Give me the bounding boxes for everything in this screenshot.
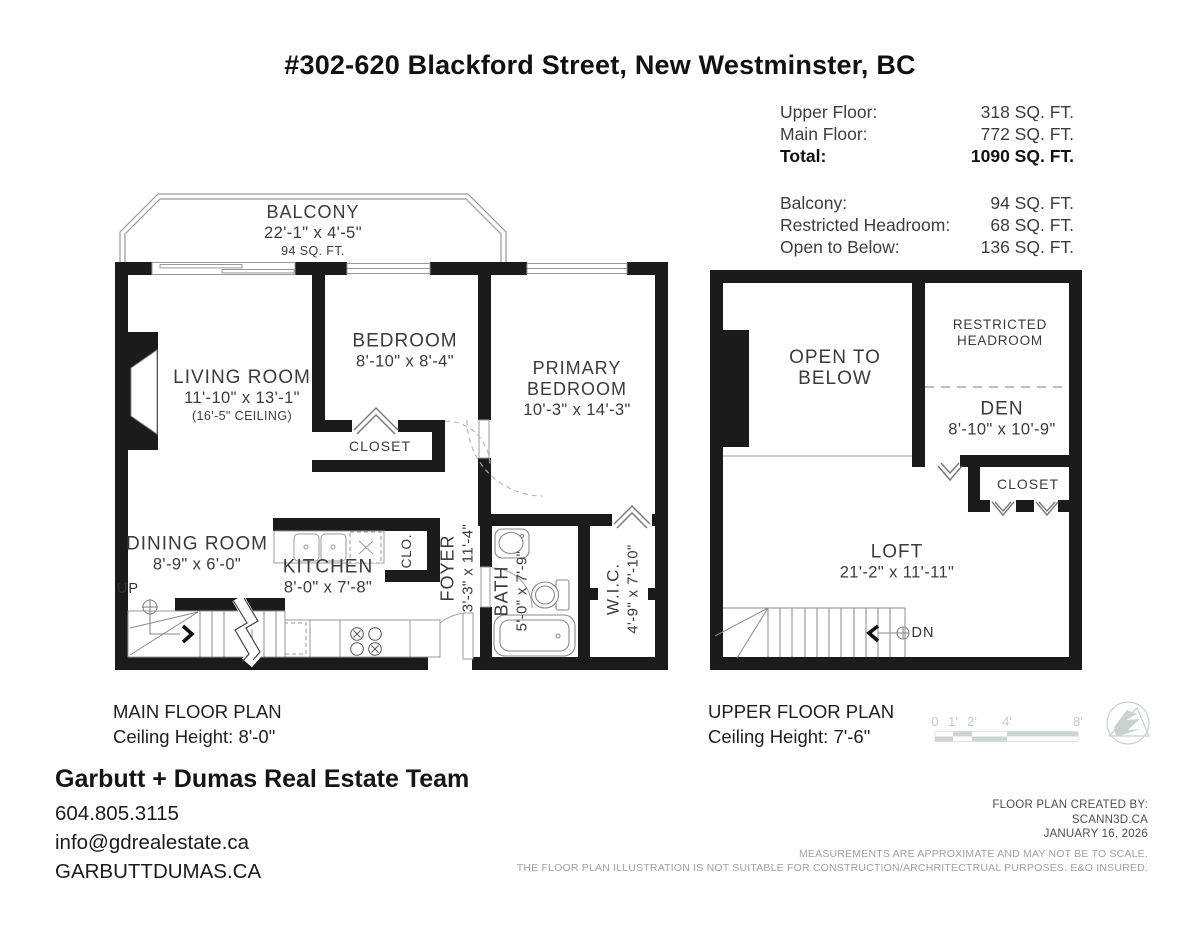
upper-closet-label: CLOSET [997,476,1059,492]
team-name: Garbutt + Dumas Real Estate Team [55,765,469,794]
primary-bedroom-label: PRIMARY BEDROOM 10'-3" x 14'-3" [523,358,630,420]
area-row-upper: Upper Floor:318 SQ. FT. [780,101,1074,123]
scale-label-1: 1' [948,714,958,729]
balcony-sliding-door [152,261,295,276]
floor-plan-page: { "title": "#302-620 Blackford Street, N… [0,0,1200,927]
scale-label-2: 2' [967,714,977,729]
disclaimer-block: MEASUREMENTS ARE APPROXIMATE AND MAY NOT… [0,848,1148,875]
dn-arrow [869,626,878,641]
bedroom-label: BEDROOM 8'-10" x 8'-4" [352,331,457,372]
area-row-restricted: Restricted Headroom:68 SQ. FT. [780,214,1074,236]
area-row-main: Main Floor:772 SQ. FT. [780,123,1074,145]
page-title: #302-620 Blackford Street, New Westminst… [0,50,1200,81]
den-label: DEN 8'-10" x 10'-9" [948,399,1055,440]
bedroom-window [347,261,430,276]
area-row-total: Total:1090 SQ. FT. [780,145,1074,167]
restricted-headroom-label: RESTRICTED HEADROOM [953,317,1047,349]
bedroom-closet-label: CLOSET [349,438,411,454]
scann3d-logo [1107,702,1149,744]
clo-label: CLO. [399,534,415,569]
area-row-open-below: Open to Below:136 SQ. FT. [780,236,1074,258]
balcony-label: BALCONY 22'-1" x 4'-5" 94 SQ. FT. [264,202,362,260]
main-floor-plan [115,194,668,670]
fireplace [128,332,158,450]
scale-label-0: 0 [931,714,938,729]
dn-path-marker [869,626,909,641]
dining-room-label: DINING ROOM 8'-9" x 6'-0" [126,534,268,575]
chimney-block [723,330,749,447]
foyer-label: FOYER 3'-3" x 11'-4" [438,524,479,612]
scale-label-4: 4' [1002,714,1012,729]
bath-label: BATH 5'-0" x 7'-9" [492,551,533,632]
scale-label-8: 8' [1073,714,1083,729]
credits-block: FLOOR PLAN CREATED BY: SCANN3D.CA JANUAR… [0,798,1148,842]
up-label: UP [117,581,139,597]
scale-bar [935,732,1078,742]
open-to-below-label: OPEN TO BELOW [789,347,881,389]
main-floor-caption: MAIN FLOOR PLAN Ceiling Height: 8'-0" [113,699,282,749]
stairs-down [715,608,905,658]
toilet [532,580,570,610]
area-summary-table: Upper Floor:318 SQ. FT. Main Floor:772 S… [780,101,1074,258]
kitchen-label: KITCHEN 8'-0" x 7'-8" [283,557,373,598]
living-room-label: LIVING ROOM 11'-10" x 13'-1" (16'-5" CEI… [173,367,311,425]
dn-label: DN [912,625,935,641]
primary-window [527,261,627,276]
loft-label: LOFT 21'-2" x 11'-11" [840,542,955,583]
upper-floor-caption: UPPER FLOOR PLAN Ceiling Height: 7'-6" [708,699,894,749]
area-row-balcony: Balcony:94 SQ. FT. [780,192,1074,214]
kitchen-lower-counter [274,620,440,657]
wic-label: W.I.C. 4'-9" x 7'-10" [603,544,644,634]
